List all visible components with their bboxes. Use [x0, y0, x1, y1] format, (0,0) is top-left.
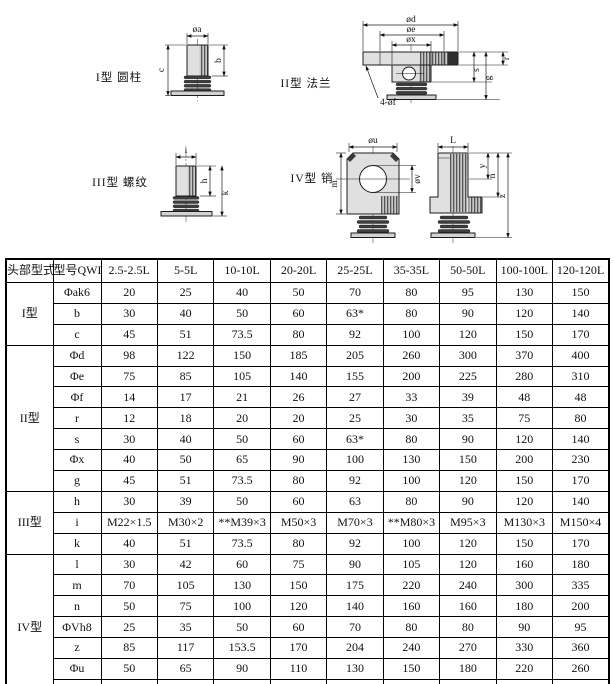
value-cell: 90	[440, 491, 496, 512]
value-cell: 80	[383, 679, 439, 684]
param-cell: Φx	[53, 450, 101, 471]
value-cell: 50	[214, 429, 270, 450]
value-cell: 117	[157, 638, 213, 659]
table-row: y2537.5506070808090100	[6, 679, 609, 684]
dim-label-n: n	[488, 173, 498, 178]
value-cell: 105	[157, 575, 213, 596]
value-cell: 60	[270, 429, 326, 450]
technical-drawings: øa c b I型 圆柱	[0, 0, 615, 256]
diagram-type3-thread: i h k III型 螺纹	[92, 146, 231, 222]
value-cell: 39	[157, 491, 213, 512]
col-header-size: 20-20L	[270, 259, 326, 283]
value-cell: 80	[383, 491, 439, 512]
param-cell: c	[53, 324, 101, 345]
value-cell: 280	[496, 366, 552, 387]
value-cell: 90	[440, 429, 496, 450]
value-cell: M50×3	[270, 512, 326, 533]
value-cell: 100	[553, 679, 610, 684]
value-cell: 33	[383, 387, 439, 408]
value-cell: 180	[496, 596, 552, 617]
value-cell: 73.5	[214, 324, 270, 345]
value-cell: 140	[327, 596, 383, 617]
value-cell: 60	[270, 491, 326, 512]
value-cell: M150×4	[553, 512, 610, 533]
dim-label-k: k	[221, 190, 231, 195]
value-cell: 42	[157, 554, 213, 575]
value-cell: 260	[553, 659, 610, 680]
param-cell: g	[53, 471, 101, 492]
value-cell: 14	[101, 387, 157, 408]
value-cell: 160	[383, 596, 439, 617]
value-cell: 140	[553, 303, 610, 324]
value-cell: 150	[496, 471, 552, 492]
value-cell: 330	[496, 638, 552, 659]
value-cell: 18	[157, 408, 213, 429]
dim-label-a: øa	[193, 25, 203, 35]
value-cell: 100	[383, 324, 439, 345]
table-row: c455173.58092100120150170	[6, 324, 609, 345]
value-cell: 150	[496, 533, 552, 554]
value-cell: 110	[270, 659, 326, 680]
value-cell: **M80×3	[383, 512, 439, 533]
value-cell: 200	[496, 450, 552, 471]
value-cell: 90	[496, 617, 552, 638]
value-cell: 65	[157, 659, 213, 680]
param-cell: h	[53, 491, 101, 512]
row-group-label: IV型	[6, 554, 53, 684]
table-row: b3040506063*8090120140	[6, 303, 609, 324]
value-cell: 130	[214, 575, 270, 596]
value-cell: 20	[270, 408, 326, 429]
spec-sheet-page: øa c b I型 圆柱	[0, 0, 615, 684]
col-header-size: 35-35L	[383, 259, 439, 283]
value-cell: M70×3	[327, 512, 383, 533]
value-cell: 98	[101, 345, 157, 366]
dim-label-v: øv	[413, 174, 423, 184]
table-row: z85117153.5170204240270330360	[6, 638, 609, 659]
value-cell: 40	[214, 283, 270, 304]
value-cell: 130	[327, 659, 383, 680]
value-cell: 35	[157, 617, 213, 638]
dim-label-e: øe	[407, 25, 416, 35]
value-cell: 92	[327, 533, 383, 554]
value-cell: 85	[101, 638, 157, 659]
param-cell: Φd	[53, 345, 101, 366]
value-cell: 130	[383, 450, 439, 471]
table-row: s3040506063*8090120140	[6, 429, 609, 450]
value-cell: 25	[101, 617, 157, 638]
value-cell: 100	[383, 533, 439, 554]
value-cell: 100	[214, 596, 270, 617]
value-cell: M30×2	[157, 512, 213, 533]
value-cell: 75	[496, 408, 552, 429]
value-cell: 120	[440, 554, 496, 575]
value-cell: 230	[553, 450, 610, 471]
value-cell: 50	[214, 491, 270, 512]
param-cell: ΦVh8	[53, 617, 101, 638]
value-cell: 70	[327, 679, 383, 684]
diagram-type2-flange: ød øe øx s g r 4-øf II型 法兰	[280, 15, 512, 108]
value-cell: 80	[383, 303, 439, 324]
value-cell: 51	[157, 533, 213, 554]
value-cell: 170	[270, 638, 326, 659]
value-cell: 92	[327, 324, 383, 345]
value-cell: 90	[214, 659, 270, 680]
table-row: Φu506590110130150180220260	[6, 659, 609, 680]
value-cell: 80	[270, 533, 326, 554]
dim-label-d: ød	[406, 15, 416, 25]
value-cell: 180	[553, 554, 610, 575]
value-cell: 150	[270, 575, 326, 596]
param-cell: n	[53, 596, 101, 617]
value-cell: 150	[383, 659, 439, 680]
param-cell: l	[53, 554, 101, 575]
value-cell: 75	[270, 554, 326, 575]
value-cell: 40	[101, 450, 157, 471]
dim-label-r: r	[502, 56, 512, 60]
value-cell: 105	[383, 554, 439, 575]
shading	[381, 196, 398, 214]
col-header-head-type: 头部型式	[6, 259, 53, 283]
value-cell: 65	[214, 450, 270, 471]
value-cell: 204	[327, 638, 383, 659]
value-cell: 50	[270, 283, 326, 304]
value-cell: 122	[157, 345, 213, 366]
value-cell: 100	[327, 450, 383, 471]
param-cell: i	[53, 512, 101, 533]
col-header-model: 型号QWL	[53, 259, 101, 283]
dim-label-i: i	[185, 146, 188, 156]
value-cell: 25	[157, 283, 213, 304]
value-cell: 80	[440, 679, 496, 684]
value-cell: 300	[440, 345, 496, 366]
value-cell: 50	[101, 596, 157, 617]
value-cell: 260	[383, 345, 439, 366]
value-cell: 90	[496, 679, 552, 684]
col-header-size: 5-5L	[157, 259, 213, 283]
value-cell: 20	[214, 408, 270, 429]
figure-label-type2: II型 法兰	[280, 76, 331, 90]
value-cell: 160	[496, 554, 552, 575]
value-cell: 63*	[327, 429, 383, 450]
value-cell: 160	[440, 596, 496, 617]
value-cell: 40	[157, 429, 213, 450]
value-cell: 80	[383, 617, 439, 638]
value-cell: 21	[214, 387, 270, 408]
value-cell: 105	[214, 366, 270, 387]
figure-label-type4: IV型 销	[290, 171, 333, 185]
value-cell: 70	[101, 575, 157, 596]
value-cell: M95×3	[440, 512, 496, 533]
value-cell: 205	[327, 345, 383, 366]
value-cell: 85	[157, 366, 213, 387]
diagram-type4-pin: øu m øv L	[290, 136, 512, 243]
param-cell: Φf	[53, 387, 101, 408]
value-cell: 60	[270, 303, 326, 324]
value-cell: 51	[157, 471, 213, 492]
dim-label-z: z	[498, 194, 508, 198]
col-header-size: 120-120L	[553, 259, 610, 283]
table-row: IV型l3042607590105120160180	[6, 554, 609, 575]
value-cell: 63*	[327, 303, 383, 324]
table-row: I型Φak620254050708095130150	[6, 283, 609, 304]
value-cell: 150	[440, 450, 496, 471]
table-row: r121820202530357580	[6, 408, 609, 429]
value-cell: 220	[383, 575, 439, 596]
value-cell: 185	[270, 345, 326, 366]
header-row: 头部型式型号QWL2.5-2.5L5-5L10-10L20-20L25-25L3…	[6, 259, 609, 283]
param-cell: Φe	[53, 366, 101, 387]
figure-label-type1: I型 圆柱	[96, 70, 142, 84]
value-cell: 20	[101, 283, 157, 304]
value-cell: 310	[553, 366, 610, 387]
shading	[469, 198, 482, 213]
shading	[450, 154, 467, 212]
dimension-table: 头部型式型号QWL2.5-2.5L5-5L10-10L20-20L25-25L3…	[5, 258, 610, 684]
value-cell: 180	[440, 659, 496, 680]
value-cell: 300	[496, 575, 552, 596]
table-row: iM22×1.5M30×2**M39×3M50×3M70×3**M80×3M95…	[6, 512, 609, 533]
shading	[448, 53, 458, 65]
value-cell: 75	[101, 366, 157, 387]
param-cell: k	[53, 533, 101, 554]
value-cell: 120	[440, 471, 496, 492]
value-cell: 130	[496, 283, 552, 304]
value-cell: 45	[101, 324, 157, 345]
value-cell: 225	[440, 366, 496, 387]
table-row: k405173.58092100120150170	[6, 533, 609, 554]
table-row: n5075100120140160160180200	[6, 596, 609, 617]
value-cell: 92	[327, 471, 383, 492]
value-cell: 80	[440, 617, 496, 638]
value-cell: 50	[214, 303, 270, 324]
value-cell: 170	[553, 324, 610, 345]
value-cell: 200	[383, 366, 439, 387]
row-group-label: III型	[6, 491, 53, 554]
table-row: III型h30395060638090120140	[6, 491, 609, 512]
value-cell: 60	[270, 617, 326, 638]
value-cell: 175	[327, 575, 383, 596]
value-cell: 95	[553, 617, 610, 638]
value-cell: 50	[214, 617, 270, 638]
col-header-size: 25-25L	[327, 259, 383, 283]
table-row: II型Φd98122150185205260300370400	[6, 345, 609, 366]
dim-label-g: g	[484, 75, 494, 80]
value-cell: 30	[101, 491, 157, 512]
value-cell: 170	[553, 533, 610, 554]
value-cell: 200	[553, 596, 610, 617]
diagram-type1-cylinder: øa c b I型 圆柱	[96, 25, 228, 101]
col-header-size: 50-50L	[440, 259, 496, 283]
param-cell: z	[53, 638, 101, 659]
value-cell: 240	[440, 575, 496, 596]
value-cell: 50	[214, 679, 270, 684]
value-cell: 35	[440, 408, 496, 429]
value-cell: 27	[327, 387, 383, 408]
value-cell: 240	[383, 638, 439, 659]
value-cell: 120	[496, 491, 552, 512]
value-cell: 60	[270, 679, 326, 684]
param-cell: Φak6	[53, 283, 101, 304]
dim-label-h: h	[200, 178, 210, 183]
value-cell: 70	[327, 617, 383, 638]
value-cell: 335	[553, 575, 610, 596]
value-cell: 90	[270, 450, 326, 471]
value-cell: 120	[440, 533, 496, 554]
value-cell: 37.5	[157, 679, 213, 684]
table-row: Φx40506590100130150200230	[6, 450, 609, 471]
value-cell: 80	[270, 471, 326, 492]
value-cell: 400	[553, 345, 610, 366]
value-cell: 40	[157, 303, 213, 324]
value-cell: 220	[496, 659, 552, 680]
param-cell: b	[53, 303, 101, 324]
value-cell: 48	[553, 387, 610, 408]
table-row: Φf141721262733394848	[6, 387, 609, 408]
dim-label-c: c	[157, 68, 167, 72]
figure-label-type3: III型 螺纹	[92, 175, 148, 189]
value-cell: 39	[440, 387, 496, 408]
value-cell: 140	[553, 429, 610, 450]
value-cell: 50	[157, 450, 213, 471]
value-cell: 70	[327, 283, 383, 304]
row-group-label: II型	[6, 345, 53, 491]
value-cell: 80	[553, 408, 610, 429]
value-cell: 63	[327, 491, 383, 512]
dim-label-y: y	[478, 163, 488, 168]
value-cell: 95	[440, 283, 496, 304]
value-cell: 150	[496, 324, 552, 345]
value-cell: 120	[496, 429, 552, 450]
value-cell: M22×1.5	[101, 512, 157, 533]
table-row: Φe7585105140155200225280310	[6, 366, 609, 387]
value-cell: 80	[270, 324, 326, 345]
value-cell: 140	[553, 491, 610, 512]
value-cell: 73.5	[214, 533, 270, 554]
value-cell: 51	[157, 324, 213, 345]
value-cell: 17	[157, 387, 213, 408]
value-cell: 50	[101, 659, 157, 680]
value-cell: 360	[553, 638, 610, 659]
table-row: m70105130150175220240300335	[6, 575, 609, 596]
value-cell: 90	[440, 303, 496, 324]
value-cell: 25	[327, 408, 383, 429]
col-header-size: 2.5-2.5L	[101, 259, 157, 283]
value-cell: 370	[496, 345, 552, 366]
value-cell: 120	[440, 324, 496, 345]
row-group-label: I型	[6, 283, 53, 346]
col-header-size: 100-100L	[496, 259, 552, 283]
param-cell: Φu	[53, 659, 101, 680]
value-cell: 30	[101, 303, 157, 324]
value-cell: M130×3	[496, 512, 552, 533]
value-cell: 40	[101, 533, 157, 554]
value-cell: 30	[101, 429, 157, 450]
dim-label-u: øu	[368, 136, 378, 146]
dim-label-f: 4-øf	[380, 97, 397, 108]
value-cell: 45	[101, 471, 157, 492]
shading	[188, 167, 196, 196]
param-cell: s	[53, 429, 101, 450]
value-cell: 90	[327, 554, 383, 575]
dim-label-s: s	[472, 68, 482, 72]
value-cell: 48	[496, 387, 552, 408]
value-cell: 150	[553, 283, 610, 304]
value-cell: **M39×3	[214, 512, 270, 533]
col-header-size: 10-10L	[214, 259, 270, 283]
param-cell: m	[53, 575, 101, 596]
value-cell: 30	[383, 408, 439, 429]
value-cell: 60	[214, 554, 270, 575]
value-cell: 150	[214, 345, 270, 366]
value-cell: 155	[327, 366, 383, 387]
value-cell: 120	[270, 596, 326, 617]
value-cell: 100	[383, 471, 439, 492]
table-row: g455173.58092100120150170	[6, 471, 609, 492]
dim-label-x: øx	[406, 35, 416, 45]
value-cell: 153.5	[214, 638, 270, 659]
value-cell: 25	[101, 679, 157, 684]
table-row: ΦVh8253550607080809095	[6, 617, 609, 638]
shading	[200, 46, 208, 76]
value-cell: 120	[496, 303, 552, 324]
value-cell: 30	[101, 554, 157, 575]
param-cell: y	[53, 679, 101, 684]
value-cell: 80	[383, 283, 439, 304]
param-cell: r	[53, 408, 101, 429]
value-cell: 170	[553, 471, 610, 492]
value-cell: 75	[157, 596, 213, 617]
value-cell: 80	[383, 429, 439, 450]
value-cell: 140	[270, 366, 326, 387]
value-cell: 270	[440, 638, 496, 659]
dim-label-L: L	[450, 136, 456, 146]
value-cell: 12	[101, 408, 157, 429]
dim-label-b: b	[214, 58, 224, 63]
value-cell: 73.5	[214, 471, 270, 492]
value-cell: 26	[270, 387, 326, 408]
